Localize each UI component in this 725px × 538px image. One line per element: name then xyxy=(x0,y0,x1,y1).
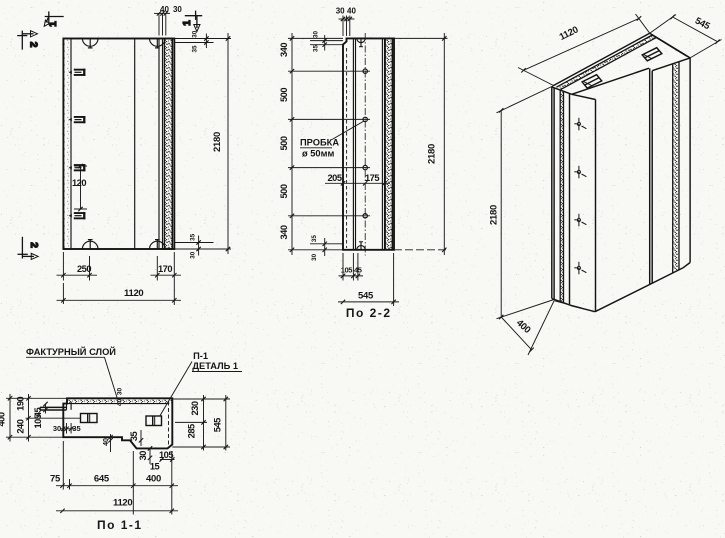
svg-text:45: 45 xyxy=(354,266,362,275)
svg-text:205: 205 xyxy=(327,173,341,183)
svg-text:ФАКТУРНЫЙ СЛОЙ: ФАКТУРНЫЙ СЛОЙ xyxy=(26,346,116,357)
svg-text:30: 30 xyxy=(138,451,148,461)
svg-text:105: 105 xyxy=(341,266,353,275)
svg-text:105: 105 xyxy=(33,414,43,428)
svg-text:105: 105 xyxy=(159,450,173,460)
svg-text:40: 40 xyxy=(160,5,169,14)
svg-text:230: 230 xyxy=(190,401,200,415)
svg-text:30: 30 xyxy=(190,251,197,259)
svg-text:30: 30 xyxy=(336,7,345,16)
svg-text:2180: 2180 xyxy=(212,132,223,152)
svg-text:2: 2 xyxy=(28,242,39,248)
svg-text:500: 500 xyxy=(279,136,289,150)
svg-text:1: 1 xyxy=(182,20,193,26)
svg-text:35: 35 xyxy=(313,45,320,53)
svg-text:340: 340 xyxy=(279,225,289,239)
svg-text:По 1-1: По 1-1 xyxy=(97,518,143,532)
svg-text:35: 35 xyxy=(190,233,197,241)
svg-text:285: 285 xyxy=(187,424,197,438)
svg-text:120: 120 xyxy=(72,178,86,188)
svg-text:40: 40 xyxy=(103,438,110,446)
svg-text:170: 170 xyxy=(158,264,172,274)
svg-text:40: 40 xyxy=(117,399,124,407)
svg-text:190: 190 xyxy=(16,396,26,410)
svg-text:340: 340 xyxy=(279,43,289,57)
svg-text:2180: 2180 xyxy=(427,144,438,164)
svg-text:35: 35 xyxy=(311,235,318,243)
svg-text:30: 30 xyxy=(173,5,182,14)
svg-text:1: 1 xyxy=(48,21,59,27)
svg-text:35: 35 xyxy=(192,45,199,53)
svg-text:По 2-2: По 2-2 xyxy=(346,306,392,320)
svg-text:1120: 1120 xyxy=(124,288,143,299)
svg-text:400: 400 xyxy=(0,412,7,426)
svg-text:ПРОБКА: ПРОБКА xyxy=(300,138,339,148)
svg-text:75: 75 xyxy=(50,474,61,485)
svg-text:30: 30 xyxy=(53,424,61,433)
svg-text:2: 2 xyxy=(28,42,39,48)
svg-text:ДЕТАЛЬ 1: ДЕТАЛЬ 1 xyxy=(192,361,238,371)
svg-text:500: 500 xyxy=(279,184,289,198)
svg-text:1120: 1120 xyxy=(113,498,132,509)
svg-text:35: 35 xyxy=(129,432,139,442)
svg-text:35: 35 xyxy=(72,424,80,433)
svg-text:175: 175 xyxy=(365,173,379,183)
svg-text:30: 30 xyxy=(117,388,124,396)
svg-text:15: 15 xyxy=(150,462,160,472)
svg-text:40: 40 xyxy=(347,7,356,16)
svg-text:30: 30 xyxy=(311,253,318,261)
svg-text:2180: 2180 xyxy=(489,205,500,225)
svg-text:250: 250 xyxy=(77,264,91,274)
svg-text:545: 545 xyxy=(212,418,222,432)
svg-text:500: 500 xyxy=(279,88,289,102)
svg-text:П-1: П-1 xyxy=(193,351,208,361)
svg-text:240: 240 xyxy=(16,419,26,433)
svg-text:645: 645 xyxy=(94,474,110,485)
svg-text:ø 50мм: ø 50мм xyxy=(302,149,334,159)
svg-text:400: 400 xyxy=(146,474,161,485)
svg-text:545: 545 xyxy=(358,291,374,302)
svg-text:30: 30 xyxy=(313,31,320,39)
